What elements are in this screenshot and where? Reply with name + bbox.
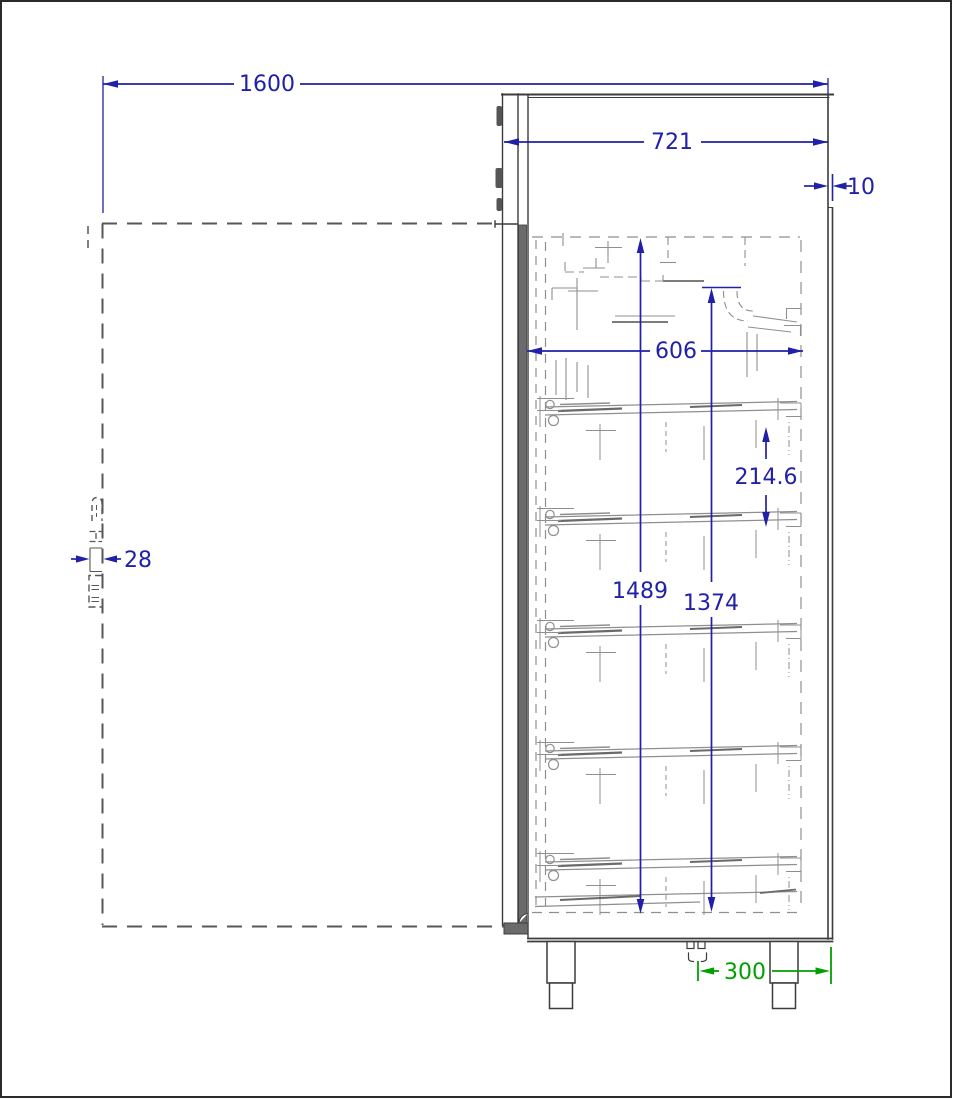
evaporator-sketch — [552, 237, 801, 400]
door-foot — [504, 923, 528, 934]
dim-label-back-clearance: 10 — [847, 175, 875, 200]
dim-label-handle-protrusion: 28 — [124, 548, 152, 573]
dim-label-interior-depth: 606 — [655, 339, 697, 364]
shelf-row — [537, 396, 801, 460]
hinge-detail — [497, 106, 503, 126]
door-profile — [495, 94, 528, 934]
dim-label-drain-to-back: 300 — [724, 960, 766, 985]
dim-label-interior-height-front: 1374 — [683, 591, 739, 616]
dimension-interior-height-front: 1374 — [683, 288, 741, 913]
shelf-row — [537, 740, 801, 804]
leg-right-foot — [773, 983, 796, 1009]
drain-detail — [687, 942, 707, 962]
dimension-interior-depth: 606 — [527, 339, 803, 364]
hinge-detail — [497, 198, 503, 211]
interior-floor-sketch — [532, 890, 800, 913]
technical-drawing: 1600 721 10 606 214.6 1489 — [0, 0, 954, 1100]
door-handle-detail — [89, 498, 102, 608]
door-gasket-band — [519, 225, 527, 924]
leg-left-foot — [550, 983, 573, 1009]
hinge-detail — [496, 168, 503, 188]
dimension-handle-protrusion: 28 — [71, 548, 152, 573]
inner-liner-dashed — [532, 233, 801, 910]
dimension-back-clearance: 10 — [804, 174, 875, 201]
leg-right — [770, 942, 798, 984]
open-door-dashed-outline — [88, 224, 505, 927]
dim-label-shelf-spacing: 214.6 — [735, 465, 798, 490]
dim-label-depth-door-open: 1600 — [239, 72, 295, 97]
shelf-row — [537, 506, 801, 570]
dimension-body-depth: 721 — [504, 130, 828, 155]
drawing-canvas: 1600 721 10 606 214.6 1489 — [0, 0, 954, 1100]
dimension-drain-to-back: 300 — [698, 947, 831, 985]
shelf-row — [537, 618, 801, 682]
leg-left — [547, 942, 575, 984]
dim-label-body-depth: 721 — [651, 130, 693, 155]
dim-label-interior-height-rear: 1489 — [612, 579, 668, 604]
